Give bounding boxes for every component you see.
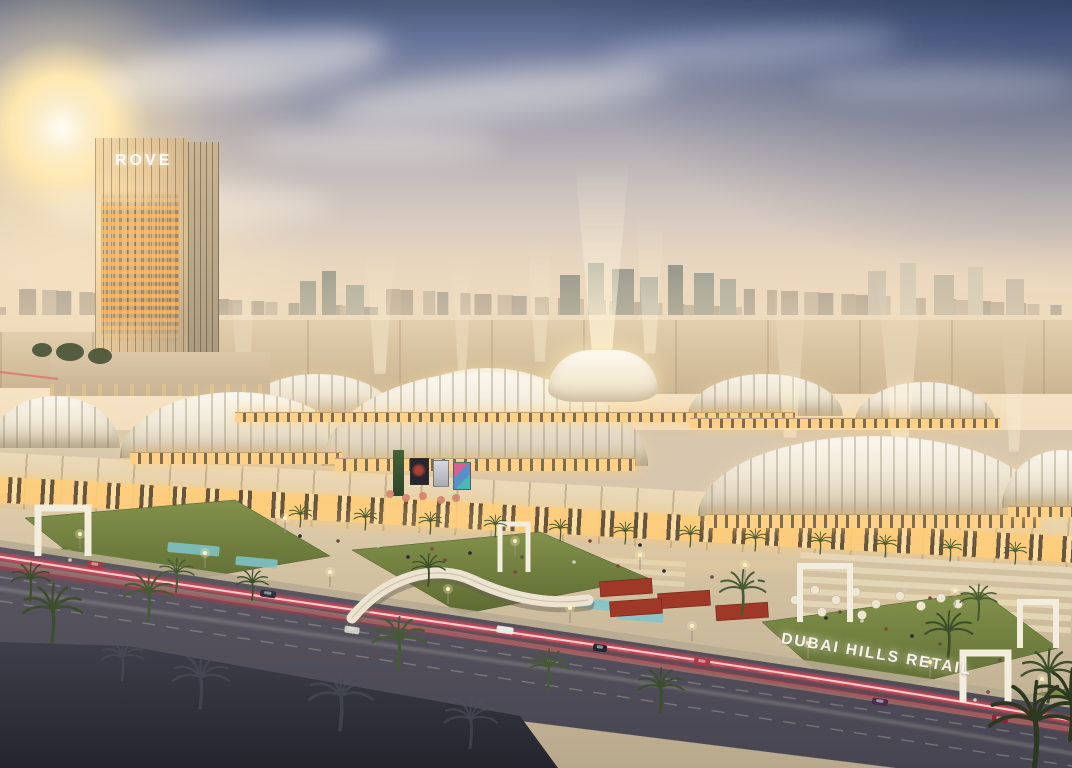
aerial-rendering: ROVE (0, 0, 1072, 768)
promenade-umbrellas (386, 490, 460, 504)
hedge-trees (32, 343, 112, 364)
highway-light-trail (0, 372, 58, 379)
